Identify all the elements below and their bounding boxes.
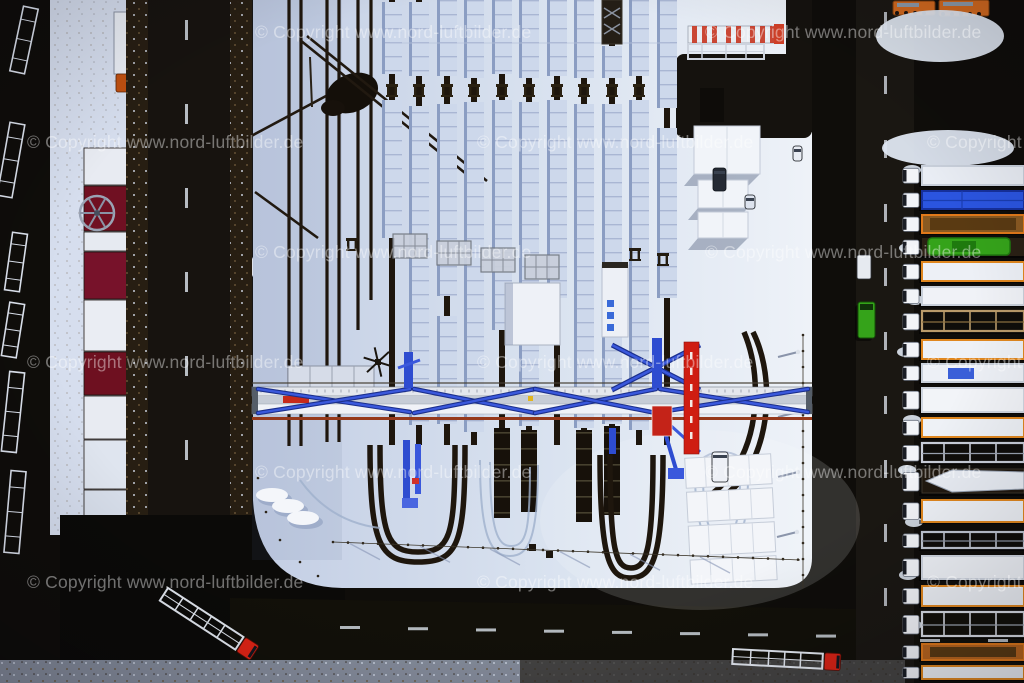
terminal-scene	[0, 0, 1024, 683]
aerial-photograph: © Copyright www.nord-luftbilder.de© Copy…	[0, 0, 1024, 683]
light-effects	[0, 0, 1024, 683]
